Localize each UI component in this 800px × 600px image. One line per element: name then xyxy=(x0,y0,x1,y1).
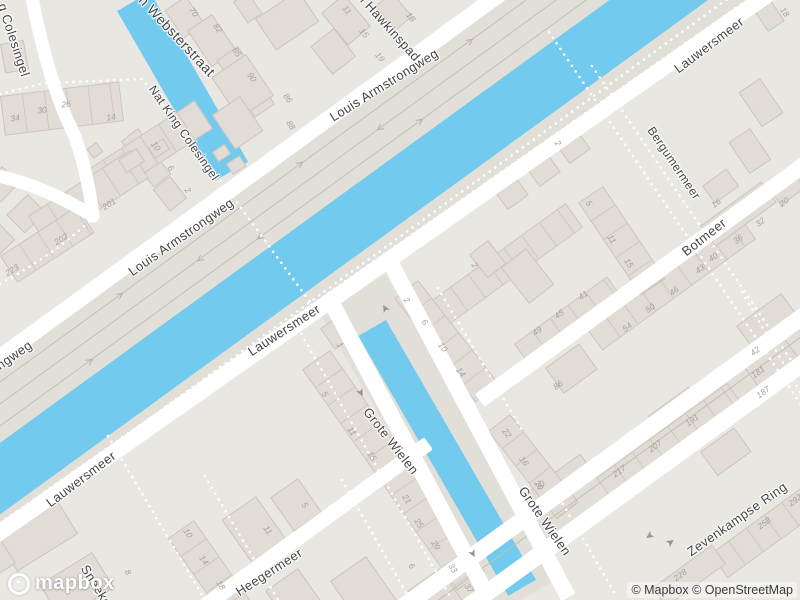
house-number: 181 xyxy=(749,364,766,380)
street-label: Grote Wielen xyxy=(516,484,575,559)
one-way-arrow-icon: ➤ xyxy=(664,536,678,550)
house-number: 2 xyxy=(183,185,194,195)
house-number: 18 xyxy=(214,578,228,591)
one-way-arrow-icon: ➤ xyxy=(353,386,367,399)
house-number: 14 xyxy=(197,553,211,566)
house-number: 217 xyxy=(610,463,627,479)
house-number: 11 xyxy=(340,3,353,16)
house-number: 11 xyxy=(345,425,358,438)
house-number: 37 xyxy=(462,581,476,594)
street-label: Bergumermeer xyxy=(644,124,703,202)
road-zevenkampse-ring-north xyxy=(230,275,800,600)
grote-wielen-canal-water xyxy=(358,320,536,596)
house-number: 5 xyxy=(584,198,595,208)
house-number: 5 xyxy=(300,500,311,510)
one-way-arrow-icon: ➤ xyxy=(642,528,656,542)
house-number: 16 xyxy=(709,196,723,210)
street-label: Louis Armstrongweg xyxy=(126,195,237,279)
house-number: 6 xyxy=(407,561,418,571)
buildings-layer xyxy=(0,0,800,600)
house-number: 90 xyxy=(245,70,259,83)
footpaths-dotted xyxy=(0,0,800,600)
house-number: 10 xyxy=(181,526,195,539)
street-label: Lauwersmeer xyxy=(43,448,118,510)
street-label: Grote Wielen xyxy=(360,405,421,478)
house-number: 54 xyxy=(620,320,634,334)
house-number: 191 xyxy=(683,412,700,428)
colesingel-curved-road xyxy=(0,0,93,216)
house-number: 223 xyxy=(3,262,20,278)
canal-corridor xyxy=(0,0,800,588)
house-number: 187 xyxy=(754,384,771,400)
road-grote-wielen-west xyxy=(323,296,497,600)
house-number: 86 xyxy=(551,378,565,392)
house-number: 1 xyxy=(335,340,346,350)
house-number: 29 xyxy=(429,538,443,551)
street-label: Nat King Colesingel xyxy=(146,83,222,184)
street-label: Lauwersmeer xyxy=(245,301,323,359)
road-louis-armstrongweg xyxy=(0,0,785,473)
house-number: 86 xyxy=(281,91,295,104)
house-number: 201 xyxy=(100,196,117,212)
main-canal-water xyxy=(0,0,800,577)
house-number: 45 xyxy=(552,307,566,321)
grote-wielen-corridor xyxy=(319,274,560,600)
house-number: 50 xyxy=(643,301,657,315)
house-number: 85 xyxy=(230,45,244,58)
mapbox-logo-text: mapbox xyxy=(35,572,115,595)
lane-chevrons xyxy=(86,37,474,365)
house-number: 258 xyxy=(755,515,772,531)
street-label: Louis Armstrongweg xyxy=(327,46,441,125)
house-number: 49 xyxy=(530,324,544,338)
street-label: Lauwersmeer xyxy=(671,14,746,76)
house-number: 82 xyxy=(211,21,225,34)
house-number: 19 xyxy=(373,50,387,64)
arrows-layer: ➤➤➤➤➤ xyxy=(0,0,800,600)
mapbox-watermark[interactable]: mapbox xyxy=(8,572,115,595)
house-number: 30 xyxy=(533,478,547,492)
street-label: g Colesingel xyxy=(0,1,33,78)
house-number: 8 xyxy=(123,567,134,576)
house-number: 21 xyxy=(400,492,414,505)
house-number: 18 xyxy=(778,5,792,18)
house-number: 41 xyxy=(576,288,590,302)
one-way-arrow-icon: ➤ xyxy=(465,547,479,560)
house-numbers-layer: 3430261410627082859011151819868820120222… xyxy=(0,0,800,600)
house-number: 43 xyxy=(693,262,707,276)
map-attribution[interactable]: © Mapbox © OpenStreetMap xyxy=(627,582,797,598)
one-way-arrow-icon: ➤ xyxy=(379,301,393,314)
street-label: Zevenkampse Ring xyxy=(684,479,790,559)
house-number: 11 xyxy=(261,524,274,537)
house-number: 10 xyxy=(436,340,450,354)
house-number: 14 xyxy=(454,365,468,379)
street-label: n Hawkinspad xyxy=(354,0,423,64)
road-zevenkampse-ring-south xyxy=(252,306,800,600)
street-label: Botmeer xyxy=(679,215,729,259)
house-number: 207 xyxy=(646,438,663,454)
street-label: ngweg xyxy=(0,337,35,372)
house-number: 2 xyxy=(553,138,564,148)
house-number: 22 xyxy=(500,426,514,440)
service-lane-lines xyxy=(0,0,800,600)
corridor-layer xyxy=(0,0,800,600)
house-number: 30 xyxy=(37,104,48,115)
house-number: 34 xyxy=(10,112,21,123)
house-number: 18 xyxy=(404,10,418,24)
house-number: 14 xyxy=(106,111,117,122)
house-number: 15 xyxy=(365,449,379,462)
ring-median xyxy=(234,281,800,600)
house-number: 15 xyxy=(622,256,636,269)
road-grote-wielen-east xyxy=(383,258,576,600)
road-lauwersmeer xyxy=(0,0,800,600)
water-layer xyxy=(0,0,800,600)
house-number: 292 xyxy=(786,492,800,508)
map-canvas[interactable]: ➤➤➤➤➤ 3430261410627082859011151819868820… xyxy=(0,0,800,600)
house-number: 40 xyxy=(706,250,720,264)
road-heegermeer xyxy=(145,437,433,600)
house-number: 228 xyxy=(671,567,688,583)
house-number: 20 xyxy=(777,195,791,209)
house-number: 15 xyxy=(357,26,371,40)
house-number: 5 xyxy=(320,389,331,399)
house-number: 32 xyxy=(753,215,767,229)
house-number: 88 xyxy=(284,118,298,131)
house-number: 26 xyxy=(61,98,72,109)
house-number: 202 xyxy=(52,231,69,247)
house-number: 16 xyxy=(517,454,531,468)
house-number: 10 xyxy=(149,139,163,153)
house-number: 11 xyxy=(605,233,618,246)
roads-layer xyxy=(0,0,800,600)
websterstraat-canal-water xyxy=(117,0,248,181)
street-label: Heegermeer xyxy=(233,545,305,599)
mapbox-logo-icon xyxy=(8,573,30,595)
house-number: 36 xyxy=(731,232,745,246)
street-label: n Websterstraat xyxy=(135,0,218,80)
street-labels-layer: g Colesingeln Websterstraatn HawkinspadN… xyxy=(0,0,800,600)
house-number: 2 xyxy=(402,295,413,305)
house-number: 20 xyxy=(532,478,546,492)
house-number: 42 xyxy=(748,344,762,358)
house-number: 33 xyxy=(446,561,460,574)
house-number: 46 xyxy=(667,284,681,298)
road-botmeer xyxy=(475,147,800,407)
house-number: 6 xyxy=(166,163,177,173)
house-number: 25 xyxy=(412,516,426,529)
paths-layer xyxy=(0,0,800,600)
house-number: 6 xyxy=(420,317,431,327)
house-number: 70 xyxy=(187,5,201,18)
house-number: 2 xyxy=(470,260,481,270)
